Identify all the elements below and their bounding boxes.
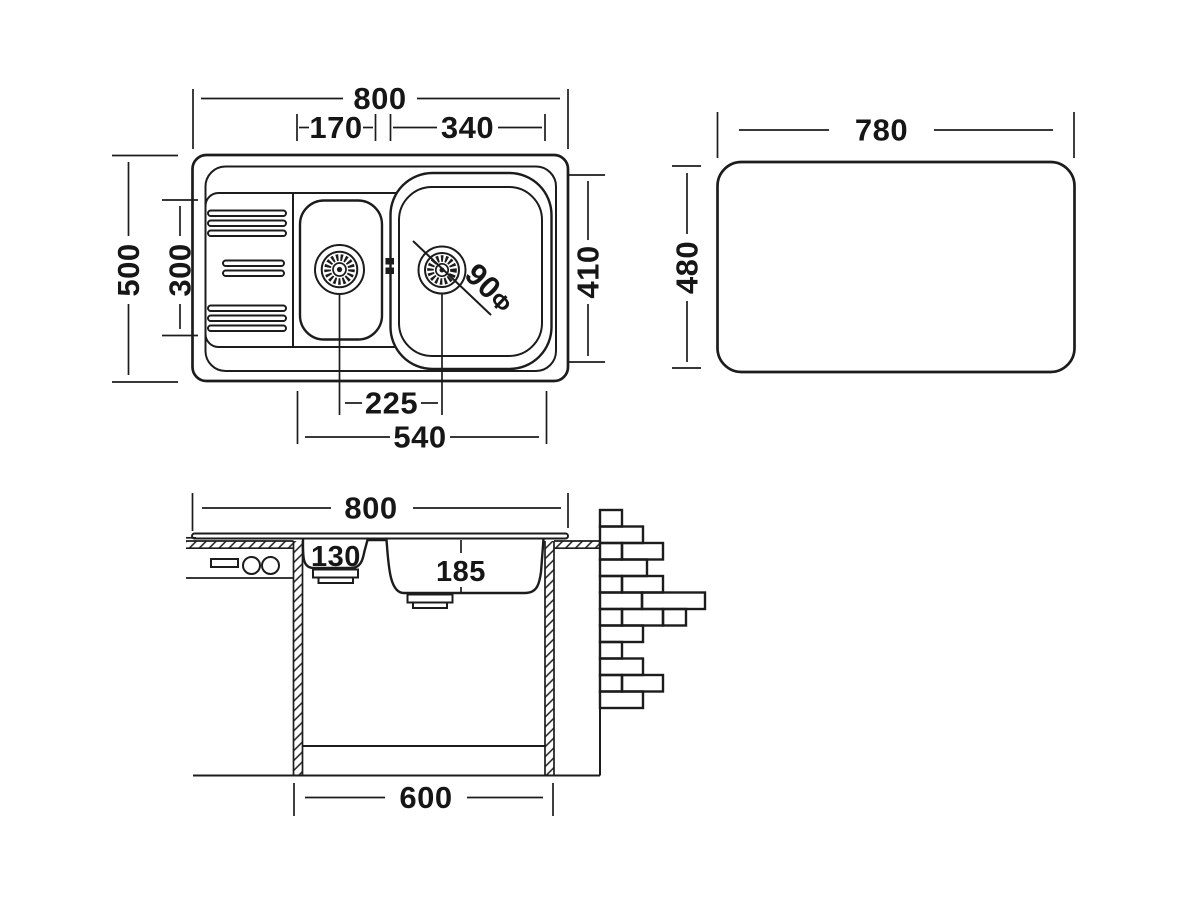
dim-section-overall-width-label: 800 (344, 491, 397, 526)
right-worktop-section (554, 541, 600, 548)
drainboard-ribs (208, 211, 286, 332)
dim-large-bowl-depth-label: 185 (436, 556, 486, 588)
cutout-view: 780 480 (670, 112, 1075, 372)
appliance-knob (243, 557, 260, 574)
brick-wall (600, 510, 705, 708)
dim-cabinet-width: 600 (294, 780, 553, 816)
top-view: 90Φ 800 170 340 (111, 81, 606, 455)
sink-rim-section (192, 534, 568, 539)
dim-large-bowl-depth-label: 410 (571, 245, 606, 298)
cabinet-right-wall (545, 541, 554, 776)
dim-large-bowl-depth: 410 (567, 175, 606, 362)
section-view: 800 (186, 491, 705, 817)
large-bowl-waste-fitting (408, 595, 453, 609)
dim-large-bowl-width: 340 (391, 110, 546, 145)
dim-small-bowl-width-label: 170 (309, 110, 362, 145)
appliance-handle (211, 559, 238, 567)
sink-technical-drawing-canvas: 90Φ 800 170 340 (0, 0, 1200, 900)
appliance-knob (262, 557, 279, 574)
dim-cutout-height-label: 480 (670, 241, 705, 294)
dim-bowls-overall-width-label: 540 (393, 420, 446, 455)
dim-cutout-width-label: 780 (855, 113, 908, 148)
dim-large-bowl-width-label: 340 (441, 110, 494, 145)
dim-overall-depth-label: 500 (111, 243, 146, 296)
cabinet-left-wall (294, 541, 303, 776)
dim-bowl-area-depth-label: 300 (163, 243, 198, 296)
drain-small (315, 245, 364, 294)
dim-cutout-height: 480 (670, 166, 705, 368)
appliance-front (186, 557, 294, 578)
dim-small-bowl-depth-label: 130 (311, 541, 361, 573)
dim-section-overall-width: 800 (193, 491, 569, 532)
dim-drain-center-offset-label: 225 (365, 386, 418, 421)
cutout-outline (718, 162, 1075, 372)
dim-cabinet-width-label: 600 (399, 780, 452, 815)
left-worktop-section (186, 541, 294, 548)
sink-technical-drawing: 90Φ 800 170 340 (0, 0, 1200, 900)
dim-top-overall-width: 800 (193, 81, 568, 149)
dim-bowls-overall-width: 540 (298, 391, 547, 455)
dim-cutout-width: 780 (718, 112, 1075, 158)
